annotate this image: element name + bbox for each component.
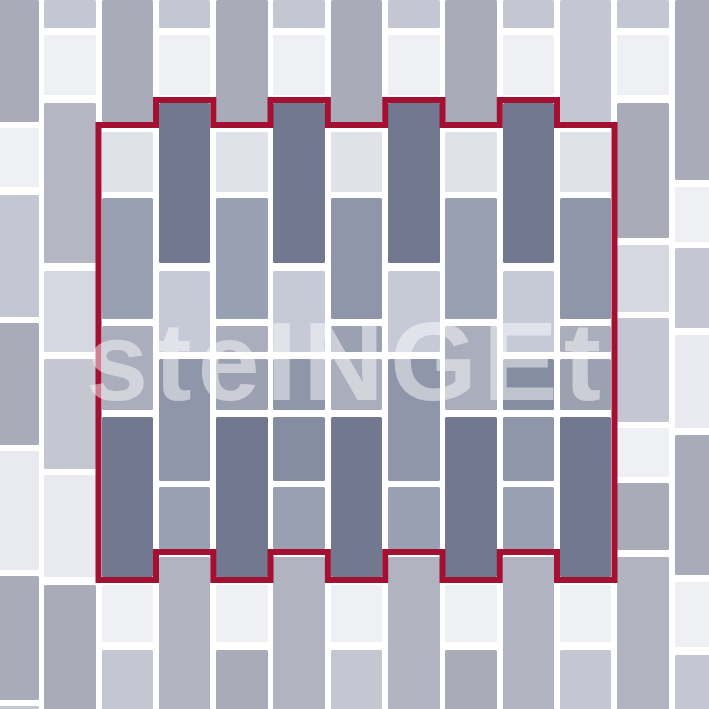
paver-tile [388, 487, 440, 549]
paver-tile [44, 0, 96, 28]
paver-tile [617, 318, 669, 422]
paver-tile [44, 585, 96, 709]
paver-tile [44, 35, 96, 95]
paver-tile [503, 271, 555, 352]
paver-tile [216, 650, 268, 709]
paver-tile [445, 0, 497, 122]
paver-tile [445, 417, 497, 577]
paver-tile [273, 557, 325, 709]
paver-tile [331, 132, 383, 192]
paver-tile [388, 271, 440, 352]
paver-tile [159, 557, 211, 709]
paver-tile [560, 417, 612, 577]
paver-tile [273, 417, 325, 481]
paver-tile [331, 0, 383, 122]
paver-tile [388, 0, 440, 28]
paver-tile [388, 35, 440, 95]
paver-tile [560, 650, 612, 709]
paver-tile [617, 557, 669, 709]
paver-tile [273, 359, 325, 410]
paver-tile [331, 585, 383, 642]
paver-tile [273, 103, 325, 263]
paver-tile [503, 487, 555, 549]
paver-tile [216, 132, 268, 192]
paver-tile [445, 326, 497, 410]
paver-tile [159, 359, 211, 481]
paver-tile [44, 359, 96, 469]
paver-tile [331, 650, 383, 709]
paver-tile [0, 195, 39, 317]
paver-tile [159, 271, 211, 352]
paver-tile [617, 483, 669, 550]
paver-tile [560, 326, 612, 352]
paver-tile [503, 0, 555, 28]
paver-tile [503, 35, 555, 95]
paver-tile [44, 103, 96, 263]
paver-tile [560, 0, 612, 122]
paver-tile [0, 128, 39, 187]
paver-tile [560, 585, 612, 642]
paving-pattern-canvas: steINGEt [0, 0, 709, 709]
paver-tile [503, 557, 555, 709]
paver-tile [216, 0, 268, 122]
paver-tile [560, 359, 612, 410]
paver-tile [159, 487, 211, 549]
paver-tile [617, 35, 669, 95]
paver-tile [273, 487, 325, 549]
paver-tile [675, 0, 709, 180]
paver-tile [388, 359, 440, 481]
paver-tile [102, 0, 154, 122]
paver-tile [503, 417, 555, 481]
paver-tile [445, 198, 497, 319]
paver-tile [44, 475, 96, 577]
paver-tile [675, 335, 709, 428]
paver-tile [102, 132, 154, 192]
paver-tile [102, 585, 154, 642]
paver-tile [216, 417, 268, 577]
paver-tile [331, 198, 383, 319]
paver-tile [159, 35, 211, 95]
paver-tile [675, 655, 709, 709]
paver-tile [331, 417, 383, 577]
paver-tile [216, 198, 268, 319]
paver-tile [0, 451, 39, 570]
paver-tile [675, 248, 709, 328]
paver-tile [675, 187, 709, 242]
paver-tile [273, 0, 325, 28]
paver-tile [216, 359, 268, 410]
paver-tile [675, 582, 709, 647]
paver-tile [159, 103, 211, 263]
paver-tile [388, 103, 440, 263]
paver-tile [0, 576, 39, 700]
paver-tile [388, 557, 440, 709]
paver-tile [273, 35, 325, 95]
paver-tile [617, 0, 669, 28]
paver-tile [445, 585, 497, 642]
paver-tile [102, 650, 154, 709]
paver-tile [0, 323, 39, 445]
paver-tile [331, 359, 383, 410]
paver-tile [331, 326, 383, 352]
paver-tile [445, 650, 497, 709]
paver-tile [159, 0, 211, 28]
paver-tile [503, 103, 555, 263]
paver-tile [102, 326, 154, 410]
paver-tile [102, 198, 154, 319]
paver-tile [617, 245, 669, 312]
paver-tile [216, 326, 268, 352]
paver-tile [102, 417, 154, 577]
paver-tile [675, 435, 709, 575]
paver-tile [0, 0, 39, 122]
paver-tile [617, 103, 669, 238]
paver-tile [445, 132, 497, 192]
paver-tile [560, 198, 612, 319]
paver-tile [617, 428, 669, 477]
paver-tile [216, 585, 268, 642]
paver-tile [44, 271, 96, 352]
paver-tile [273, 271, 325, 352]
paver-tile [560, 132, 612, 192]
paver-tile [503, 359, 555, 410]
